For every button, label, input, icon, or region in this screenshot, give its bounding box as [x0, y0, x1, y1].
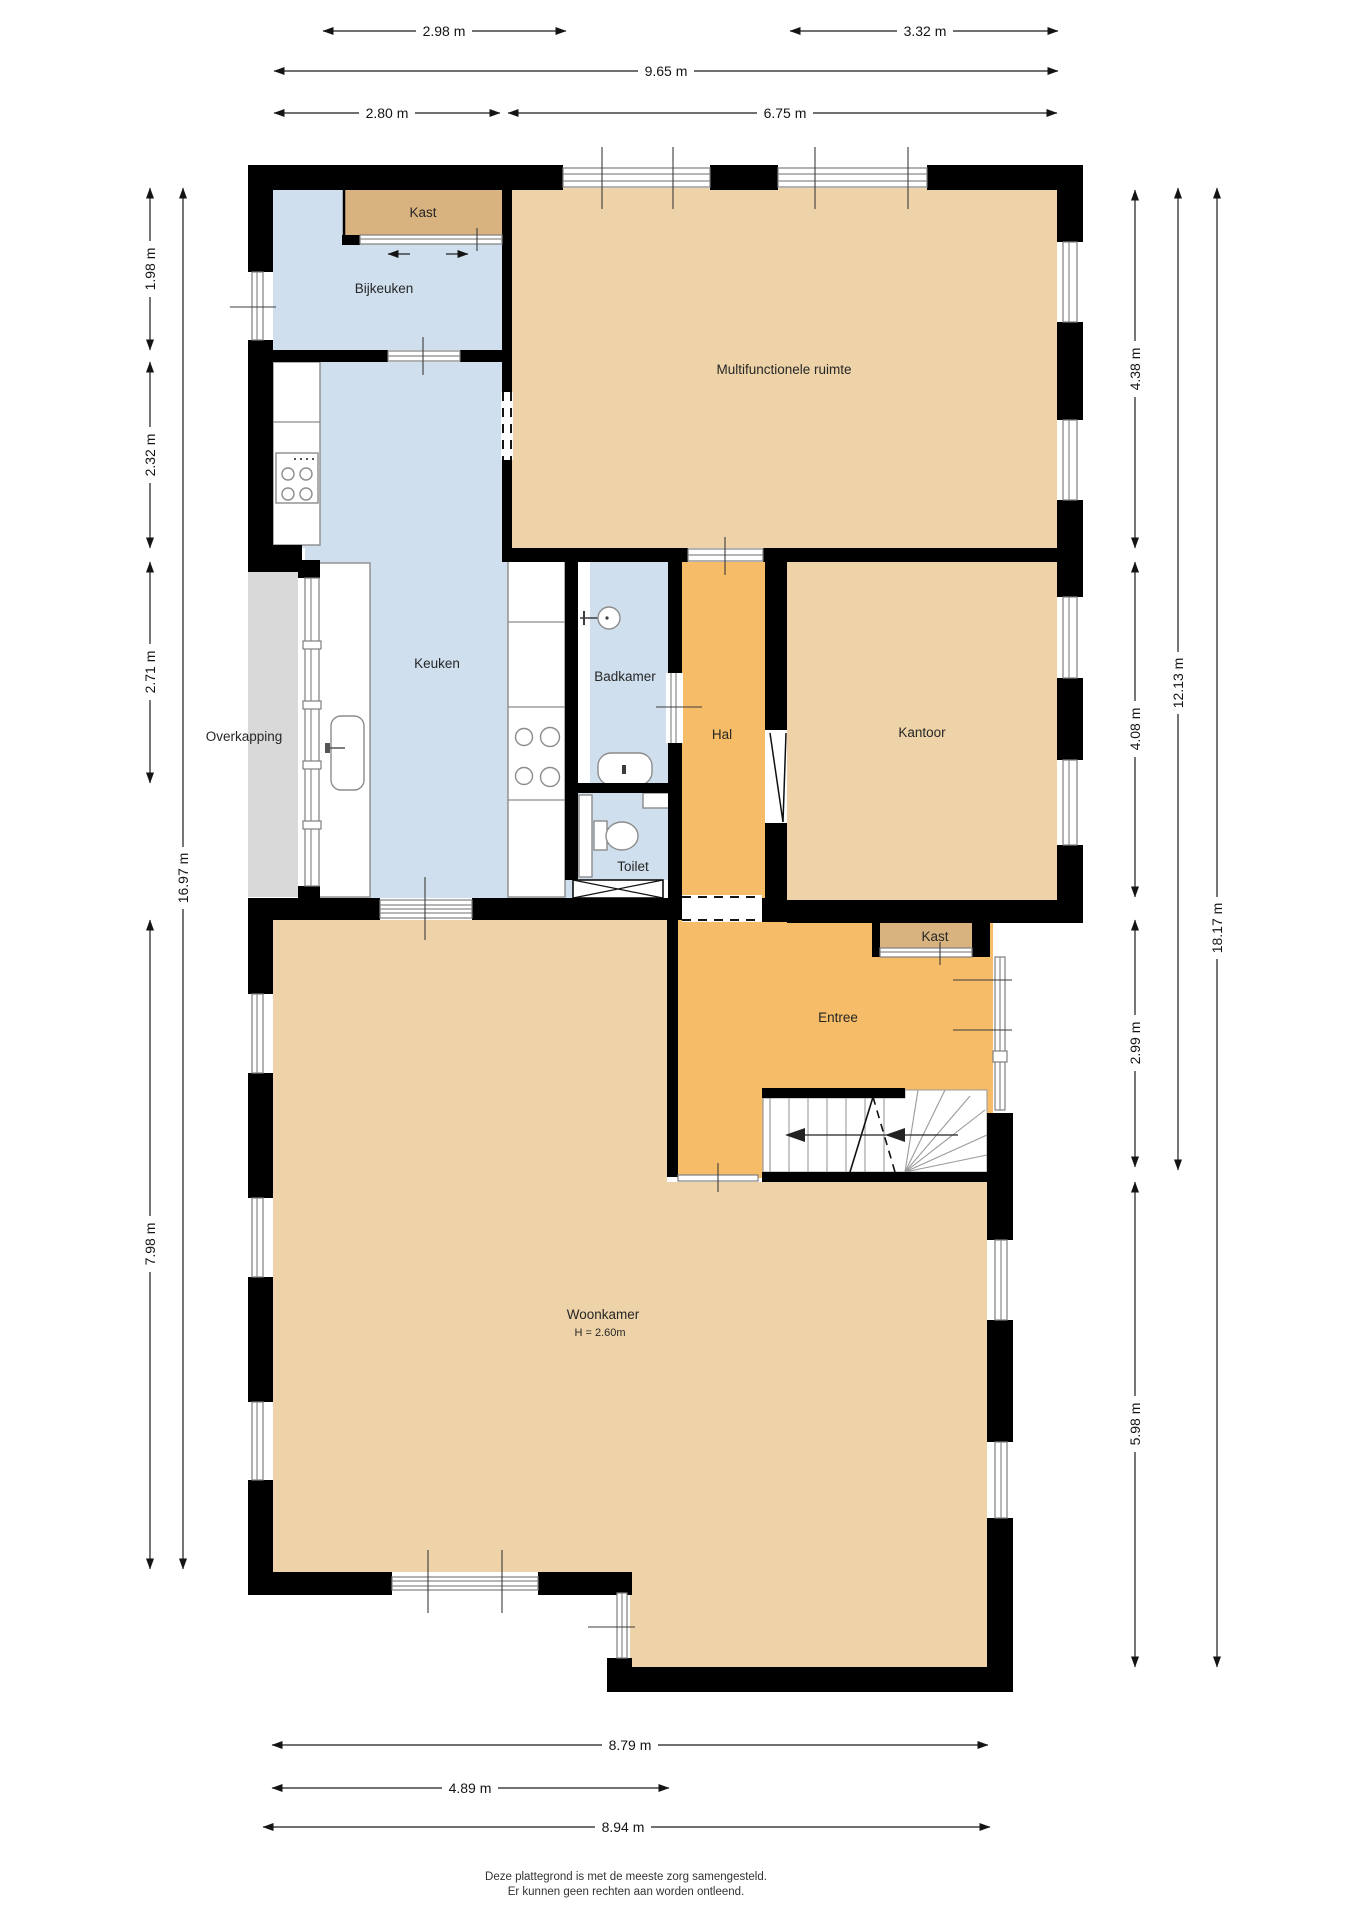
glass-door-keuken-west: [303, 578, 321, 886]
label-kast-boven: Kast: [409, 205, 436, 220]
opening-keuken-multifunctionele: [501, 392, 513, 460]
dim-left-2-32: 2.32 m: [142, 434, 158, 477]
label-entree: Entree: [818, 1010, 858, 1025]
label-bijkeuken: Bijkeuken: [355, 281, 414, 296]
disclaimer-line-2: Er kunnen geen rechten aan worden ontlee…: [508, 1886, 745, 1898]
label-toilet: Toilet: [617, 859, 649, 874]
window-woonkamer-west-3: [252, 1402, 263, 1480]
dim-bottom-8-79: 8.79 m: [609, 1737, 652, 1753]
label-woonkamer-height: H = 2.60m: [574, 1327, 625, 1339]
label-kast-entree: Kast: [921, 929, 948, 944]
dim-top-2-80: 2.80 m: [366, 105, 409, 121]
dim-right-4-38: 4.38 m: [1127, 348, 1143, 391]
opening-hal-entree: [682, 895, 762, 922]
window-woonkamer-west-1: [252, 994, 263, 1073]
dim-left-1-98: 1.98 m: [142, 248, 158, 291]
stove-icon: [276, 453, 318, 503]
window-woonkamer-east-2: [995, 1442, 1007, 1518]
window-bijkeuken-west: [230, 272, 276, 340]
window-woonkamer-west-2: [252, 1198, 263, 1277]
floorplan-page: 2.98 m 3.32 m 9.65 m 2.80 m 6.75 m 1.98 …: [0, 0, 1358, 1920]
door-kantoor: [766, 730, 786, 823]
disclaimer-line-1: Deze plattegrond is met de meeste zorg s…: [485, 1871, 767, 1883]
window-multifunctionele-east-2: [1063, 420, 1077, 500]
label-hal: Hal: [712, 727, 732, 742]
window-multifunctionele-east-1: [1063, 242, 1077, 322]
dim-top-3-32: 3.32 m: [904, 23, 947, 39]
dim-left-16-97: 16.97 m: [175, 853, 191, 904]
sink-icon: [325, 716, 364, 790]
dim-bottom-4-89: 4.89 m: [449, 1780, 492, 1796]
dim-right-4-08: 4.08 m: [1127, 708, 1143, 751]
dim-right-12-13: 12.13 m: [1170, 658, 1186, 709]
toilet-cabinet: [579, 795, 592, 877]
staircase: [763, 1090, 987, 1172]
dim-top-2-98: 2.98 m: [423, 23, 466, 39]
label-keuken: Keuken: [414, 656, 460, 671]
window-kantoor-east-2: [1063, 760, 1077, 845]
dim-right-5-98: 5.98 m: [1127, 1403, 1143, 1446]
kitchen-counter-east: [508, 560, 565, 897]
label-woonkamer: Woonkamer: [567, 1307, 640, 1322]
washbasin-icon: [598, 753, 652, 785]
room-floors: [248, 188, 1057, 1667]
footer-disclaimer: Deze plattegrond is met de meeste zorg s…: [485, 1871, 767, 1898]
stairs-entry: [763, 1098, 770, 1172]
dim-bottom-8-94: 8.94 m: [602, 1819, 645, 1835]
toilet-icon: [594, 821, 638, 850]
dim-right-2-99: 2.99 m: [1127, 1022, 1143, 1065]
toilet-sink-icon: [643, 793, 669, 808]
label-badkamer: Badkamer: [594, 669, 656, 684]
bathroom-wall-strip: [578, 562, 590, 783]
dim-left-2-71: 2.71 m: [142, 651, 158, 694]
label-multifunctionele-ruimte: Multifunctionele ruimte: [716, 362, 851, 377]
label-overkapping: Overkapping: [206, 729, 283, 744]
dim-left-7-98: 7.98 m: [142, 1223, 158, 1266]
dim-top-6-75: 6.75 m: [764, 105, 807, 121]
window-woonkamer-east-1: [995, 1240, 1007, 1320]
window-kantoor-east-1: [1063, 597, 1077, 678]
dim-right-18-17: 18.17 m: [1209, 903, 1225, 954]
floorplan-canvas: 2.98 m 3.32 m 9.65 m 2.80 m 6.75 m 1.98 …: [0, 0, 1358, 1920]
hatch-icon: [573, 880, 663, 898]
label-kantoor: Kantoor: [898, 725, 946, 740]
dim-top-9-65: 9.65 m: [645, 63, 688, 79]
window-extension-west: [588, 1593, 635, 1658]
